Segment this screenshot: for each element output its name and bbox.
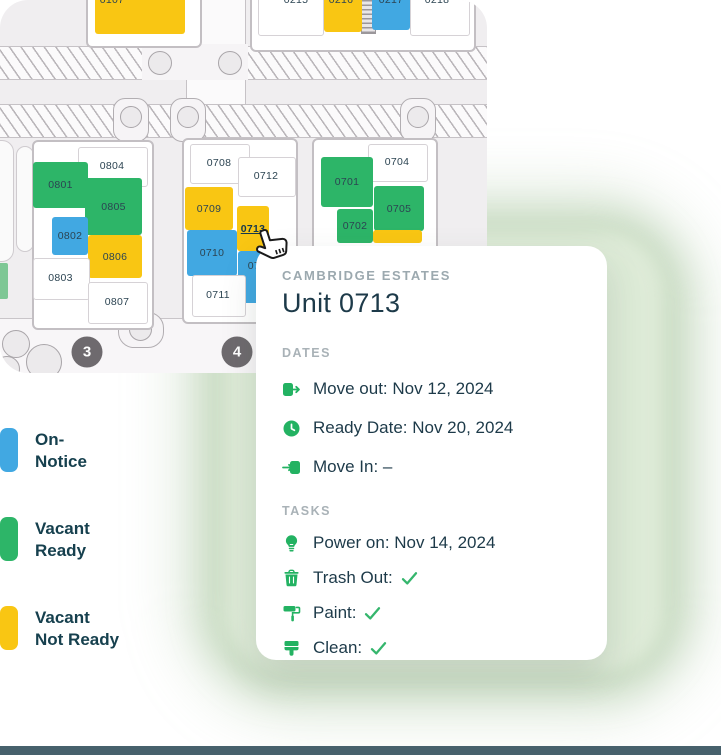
section-dates: DATES Move out: Nov 12, 2024 Ready Date:… — [282, 346, 581, 477]
legend-label: Vacant Ready — [35, 517, 90, 562]
map-unit-label-0708: 0708 — [207, 157, 232, 169]
map-unit-label-0801: 0801 — [48, 179, 73, 191]
map-unit-label-0803: 0803 — [48, 272, 73, 284]
map-unit-label-0712: 0712 — [254, 170, 279, 182]
map-unit-label-0215: 0215 — [284, 0, 309, 6]
map-unit-label-0705: 0705 — [387, 203, 412, 215]
map-unit-label-0710: 0710 — [200, 247, 225, 259]
detail-text: Move out: Nov 12, 2024 — [313, 379, 494, 399]
paint-roller-icon — [282, 604, 301, 623]
paint-roller-icon — [282, 604, 301, 623]
map-unit-0706[interactable] — [373, 230, 422, 243]
trash-icon — [282, 569, 301, 588]
move-in-icon — [282, 458, 301, 477]
legend-swatch — [0, 428, 18, 472]
trash-icon — [282, 569, 301, 588]
detail-row: Power on: Nov 14, 2024 — [282, 533, 581, 553]
legend-label: Vacant Not Ready — [35, 606, 119, 651]
map-legend: On- Notice Vacant Ready Vacant Not Ready — [0, 428, 119, 696]
detail-text: Paint: — [313, 603, 356, 623]
detail-text: Move In: – — [313, 457, 392, 477]
unit-detail-card: CAMBRIDGE ESTATES Unit 0713 DATES Move o… — [256, 246, 607, 660]
map-unit-label-0804: 0804 — [100, 160, 125, 172]
tree-icon — [177, 106, 199, 128]
check-icon — [370, 641, 387, 656]
building-marker-3: 3 — [72, 337, 103, 368]
lightbulb-icon — [282, 534, 301, 553]
map-unit-partial — [0, 263, 8, 299]
map-unit-label-0704: 0704 — [385, 156, 410, 168]
property-name: CAMBRIDGE ESTATES — [282, 268, 581, 283]
detail-row: Ready Date: Nov 20, 2024 — [282, 418, 581, 438]
map-unit-label-0807: 0807 — [105, 296, 130, 308]
section-label: TASKS — [282, 504, 581, 518]
detail-row: Move out: Nov 12, 2024 — [282, 379, 581, 399]
legend-item: On- Notice — [0, 428, 119, 473]
clock-icon — [282, 419, 301, 438]
task-complete-check — [401, 571, 418, 586]
detail-text: Power on: Nov 14, 2024 — [313, 533, 495, 553]
detail-row: Move In: – — [282, 457, 581, 477]
section-label: DATES — [282, 346, 581, 360]
map-unit-label-0218: 0218 — [425, 0, 450, 6]
detail-row: Trash Out: — [282, 568, 581, 588]
detail-row: Clean: — [282, 638, 581, 658]
map-unit-label-0802: 0802 — [58, 230, 83, 242]
clock-icon — [282, 419, 301, 438]
legend-swatch — [0, 606, 18, 650]
next-section-edge — [0, 746, 721, 755]
tree-icon — [148, 51, 172, 75]
building-marker-4: 4 — [222, 337, 253, 368]
bulb-icon — [282, 534, 301, 553]
detail-text: Clean: — [313, 638, 362, 658]
check-icon — [401, 571, 418, 586]
move-out-icon — [282, 380, 301, 399]
map-unit-label-0709: 0709 — [197, 203, 222, 215]
task-complete-check — [364, 606, 381, 621]
clean-brush-icon — [282, 639, 301, 658]
tree-icon — [407, 106, 429, 128]
check-icon — [364, 606, 381, 621]
move-in-icon — [282, 458, 301, 477]
map-unit-label-0702: 0702 — [343, 220, 368, 232]
tree-icon — [26, 344, 62, 373]
brush-icon — [282, 639, 301, 658]
map-unit-label-0711: 0711 — [206, 289, 230, 301]
tree-icon — [120, 106, 142, 128]
legend-swatch — [0, 517, 18, 561]
tree-icon — [218, 51, 242, 75]
legend-label: On- Notice — [35, 428, 87, 473]
map-unit-label-0107: 0107 — [100, 0, 125, 6]
detail-row: Paint: — [282, 603, 581, 623]
map-unit-label-0806: 0806 — [103, 251, 128, 263]
map-unit-label-0217: 0217 — [379, 0, 404, 6]
map-unit-label-0216: 0216 — [329, 0, 354, 6]
page: 0107021502160217021808040801080508020806… — [0, 0, 721, 755]
greenway — [0, 140, 14, 262]
move-out-icon — [282, 380, 301, 399]
legend-item: Vacant Ready — [0, 517, 119, 562]
tree-icon — [2, 330, 30, 358]
section-tasks: TASKS Power on: Nov 14, 2024 Trash Out: … — [282, 504, 581, 658]
detail-text: Ready Date: Nov 20, 2024 — [313, 418, 513, 438]
task-complete-check — [370, 641, 387, 656]
map-unit-label-0805: 0805 — [101, 201, 126, 213]
legend-item: Vacant Not Ready — [0, 606, 119, 651]
detail-text: Trash Out: — [313, 568, 393, 588]
unit-title: Unit 0713 — [282, 288, 581, 319]
map-unit-label-0701: 0701 — [335, 176, 360, 188]
